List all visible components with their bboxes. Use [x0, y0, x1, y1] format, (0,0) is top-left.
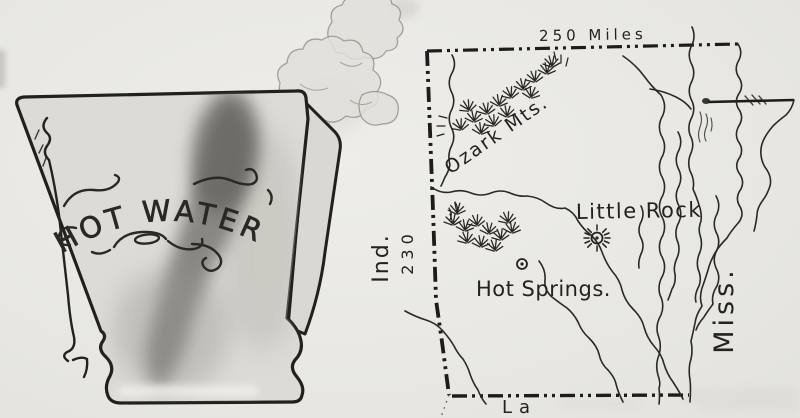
border-faint-continuation — [441, 395, 449, 417]
st-francis-river — [689, 27, 702, 302]
louisiana-label: La — [502, 397, 537, 418]
hot-water-pitcher: HOT WATER — [17, 84, 341, 403]
red-river — [405, 311, 486, 404]
little-rock-label: Little Rock — [576, 198, 703, 224]
ne-river-branch — [754, 100, 794, 231]
ouachita-mountains-hachures — [444, 202, 521, 252]
bootheel-junction-blob — [702, 98, 710, 104]
indian-territory-label: Ind. — [369, 233, 394, 282]
crowleys-ridge-shading — [699, 112, 713, 142]
hot-springs-label: Hot Springs. — [476, 277, 611, 301]
white-river-fork — [650, 89, 691, 109]
scanned-illustration-page: HOT WATER — [0, 0, 800, 418]
arkansas-map: 250 Miles Ozark Mts. Little Rock Hot Spr… — [369, 25, 794, 418]
scale-left-label: 230 — [398, 229, 417, 275]
pitcher-base-mark — [73, 358, 87, 377]
steam-side-puff — [359, 92, 398, 126]
hot-water-arkansas-drawing: HOT WATER — [0, 0, 800, 418]
mississippi-label: Miss. — [709, 266, 740, 354]
scale-miles-label: 250 Miles — [539, 25, 647, 45]
hot-springs-circle-dot-icon — [517, 259, 527, 269]
map-south-border — [452, 395, 689, 396]
little-rock-sunburst-icon — [584, 225, 610, 251]
